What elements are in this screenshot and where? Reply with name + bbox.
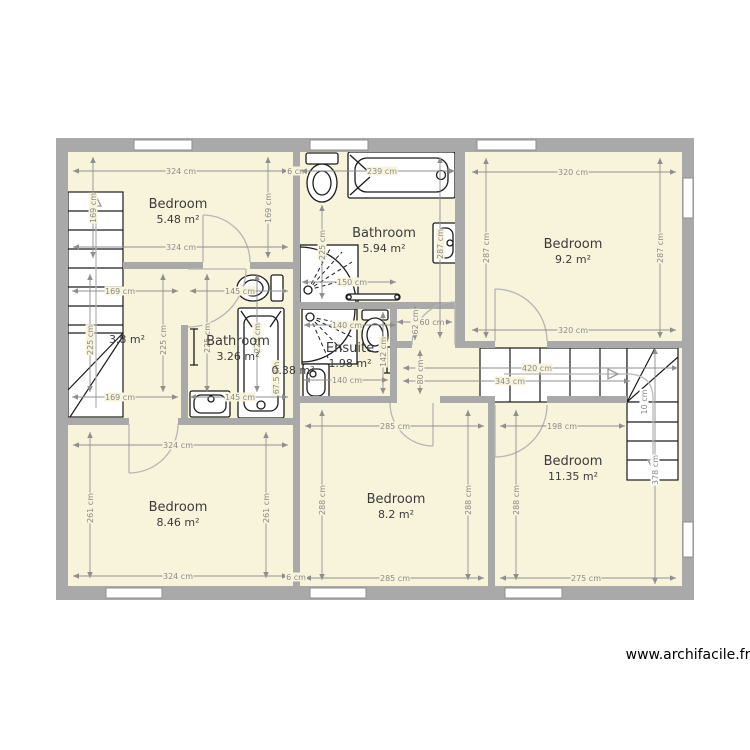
window <box>310 588 366 598</box>
svg-text:239 cm: 239 cm <box>367 167 397 176</box>
room-label: Bedroom11.35 m² <box>544 454 603 483</box>
svg-text:Bedroom: Bedroom <box>367 492 426 507</box>
svg-text:60 cm: 60 cm <box>420 318 445 327</box>
svg-text:324 cm: 324 cm <box>166 243 196 252</box>
svg-text:288 cm: 288 cm <box>318 485 327 515</box>
svg-text:11.35 m²: 11.35 m² <box>548 470 598 483</box>
dimension: 10 cm <box>640 389 649 416</box>
dimension: 6 cm <box>285 573 307 582</box>
window <box>477 140 536 150</box>
svg-text:324 cm: 324 cm <box>166 167 196 176</box>
wall <box>68 418 129 425</box>
svg-text:10 cm: 10 cm <box>640 389 649 414</box>
window <box>106 588 162 598</box>
svg-text:3.26 m²: 3.26 m² <box>216 350 259 363</box>
svg-text:62 cm: 62 cm <box>411 309 420 334</box>
svg-text:Bathroom: Bathroom <box>352 226 416 241</box>
svg-text:Ensuite: Ensuite <box>326 341 374 356</box>
svg-text:80 cm: 80 cm <box>416 359 425 384</box>
svg-text:287 cm: 287 cm <box>436 229 445 259</box>
svg-text:287 cm: 287 cm <box>656 233 665 263</box>
svg-text:142 cm: 142 cm <box>379 337 388 367</box>
wall <box>181 325 188 418</box>
svg-text:140 cm: 140 cm <box>332 376 362 385</box>
floor-plan: 324 cm324 cm6 cm239 cm320 cm320 cm150 cm… <box>0 0 750 750</box>
room-label: 3.8 m² <box>109 333 145 346</box>
svg-text:169 cm: 169 cm <box>105 393 135 402</box>
svg-text:3.8 m²: 3.8 m² <box>109 333 145 346</box>
wall <box>56 152 68 586</box>
wall <box>455 152 465 348</box>
svg-text:324 cm: 324 cm <box>163 572 193 581</box>
svg-text:261 cm: 261 cm <box>262 493 271 523</box>
svg-text:320 cm: 320 cm <box>558 168 588 177</box>
bathtub <box>348 152 455 198</box>
window <box>505 588 562 598</box>
wall <box>390 302 397 403</box>
svg-text:261 cm: 261 cm <box>86 493 95 523</box>
svg-text:169 cm: 169 cm <box>105 287 135 296</box>
window <box>310 140 368 150</box>
wall <box>440 396 495 403</box>
svg-text:9.2 m²: 9.2 m² <box>555 253 591 266</box>
wall <box>547 396 627 403</box>
svg-text:225 cm: 225 cm <box>318 230 327 260</box>
svg-text:198 cm: 198 cm <box>547 422 577 431</box>
svg-text:Bedroom: Bedroom <box>149 197 208 212</box>
svg-text:150 cm: 150 cm <box>337 278 367 287</box>
room-label: Bedroom5.48 m² <box>149 197 208 226</box>
svg-text:285 cm: 285 cm <box>380 422 410 431</box>
dimension: 62 cm <box>411 306 420 340</box>
svg-text:343 cm: 343 cm <box>495 377 525 386</box>
svg-text:378 cm: 378 cm <box>651 455 660 485</box>
svg-text:6 cm: 6 cm <box>286 573 306 582</box>
wall <box>455 341 495 348</box>
svg-text:287 cm: 287 cm <box>482 233 491 263</box>
wall <box>178 418 293 425</box>
svg-text:225 cm: 225 cm <box>86 325 95 355</box>
svg-text:420 cm: 420 cm <box>522 364 552 373</box>
svg-text:5.48 m²: 5.48 m² <box>156 213 199 226</box>
window <box>134 140 192 150</box>
svg-text:Bathroom: Bathroom <box>206 334 270 349</box>
window <box>683 178 693 218</box>
svg-text:Bedroom: Bedroom <box>544 237 603 252</box>
wall <box>123 262 203 269</box>
svg-text:0.38 m²: 0.38 m² <box>271 364 314 377</box>
svg-text:145 cm: 145 cm <box>225 287 255 296</box>
svg-text:Bedroom: Bedroom <box>544 454 603 469</box>
wall <box>547 341 682 348</box>
wall <box>488 403 495 586</box>
wall <box>250 262 293 269</box>
bench <box>346 294 400 300</box>
svg-text:324 cm: 324 cm <box>163 441 193 450</box>
svg-text:8.46 m²: 8.46 m² <box>156 516 199 529</box>
svg-text:Bedroom: Bedroom <box>149 500 208 515</box>
svg-text:225 cm: 225 cm <box>159 325 168 355</box>
svg-text:169 cm: 169 cm <box>264 193 273 223</box>
window <box>683 522 693 557</box>
svg-text:320 cm: 320 cm <box>558 326 588 335</box>
svg-text:285 cm: 285 cm <box>380 574 410 583</box>
svg-text:5.94 m²: 5.94 m² <box>362 242 405 255</box>
svg-text:1.98 m²: 1.98 m² <box>328 357 371 370</box>
svg-text:140 cm: 140 cm <box>332 321 362 330</box>
room-label: Bedroom8.46 m² <box>149 500 208 529</box>
svg-text:288 cm: 288 cm <box>512 485 521 515</box>
svg-text:8.2 m²: 8.2 m² <box>378 508 414 521</box>
wall <box>300 396 397 403</box>
svg-text:169 cm: 169 cm <box>89 193 98 223</box>
watermark: www.archifacile.fr <box>626 647 750 663</box>
svg-text:275 cm: 275 cm <box>571 574 601 583</box>
room-label: 0.38 m² <box>271 364 314 377</box>
room-label: Ensuite1.98 m² <box>326 341 374 370</box>
svg-text:288 cm: 288 cm <box>464 485 473 515</box>
svg-text:145 cm: 145 cm <box>225 393 255 402</box>
floor-plan-page: 324 cm324 cm6 cm239 cm320 cm320 cm150 cm… <box>0 0 750 750</box>
toilet <box>306 153 338 202</box>
